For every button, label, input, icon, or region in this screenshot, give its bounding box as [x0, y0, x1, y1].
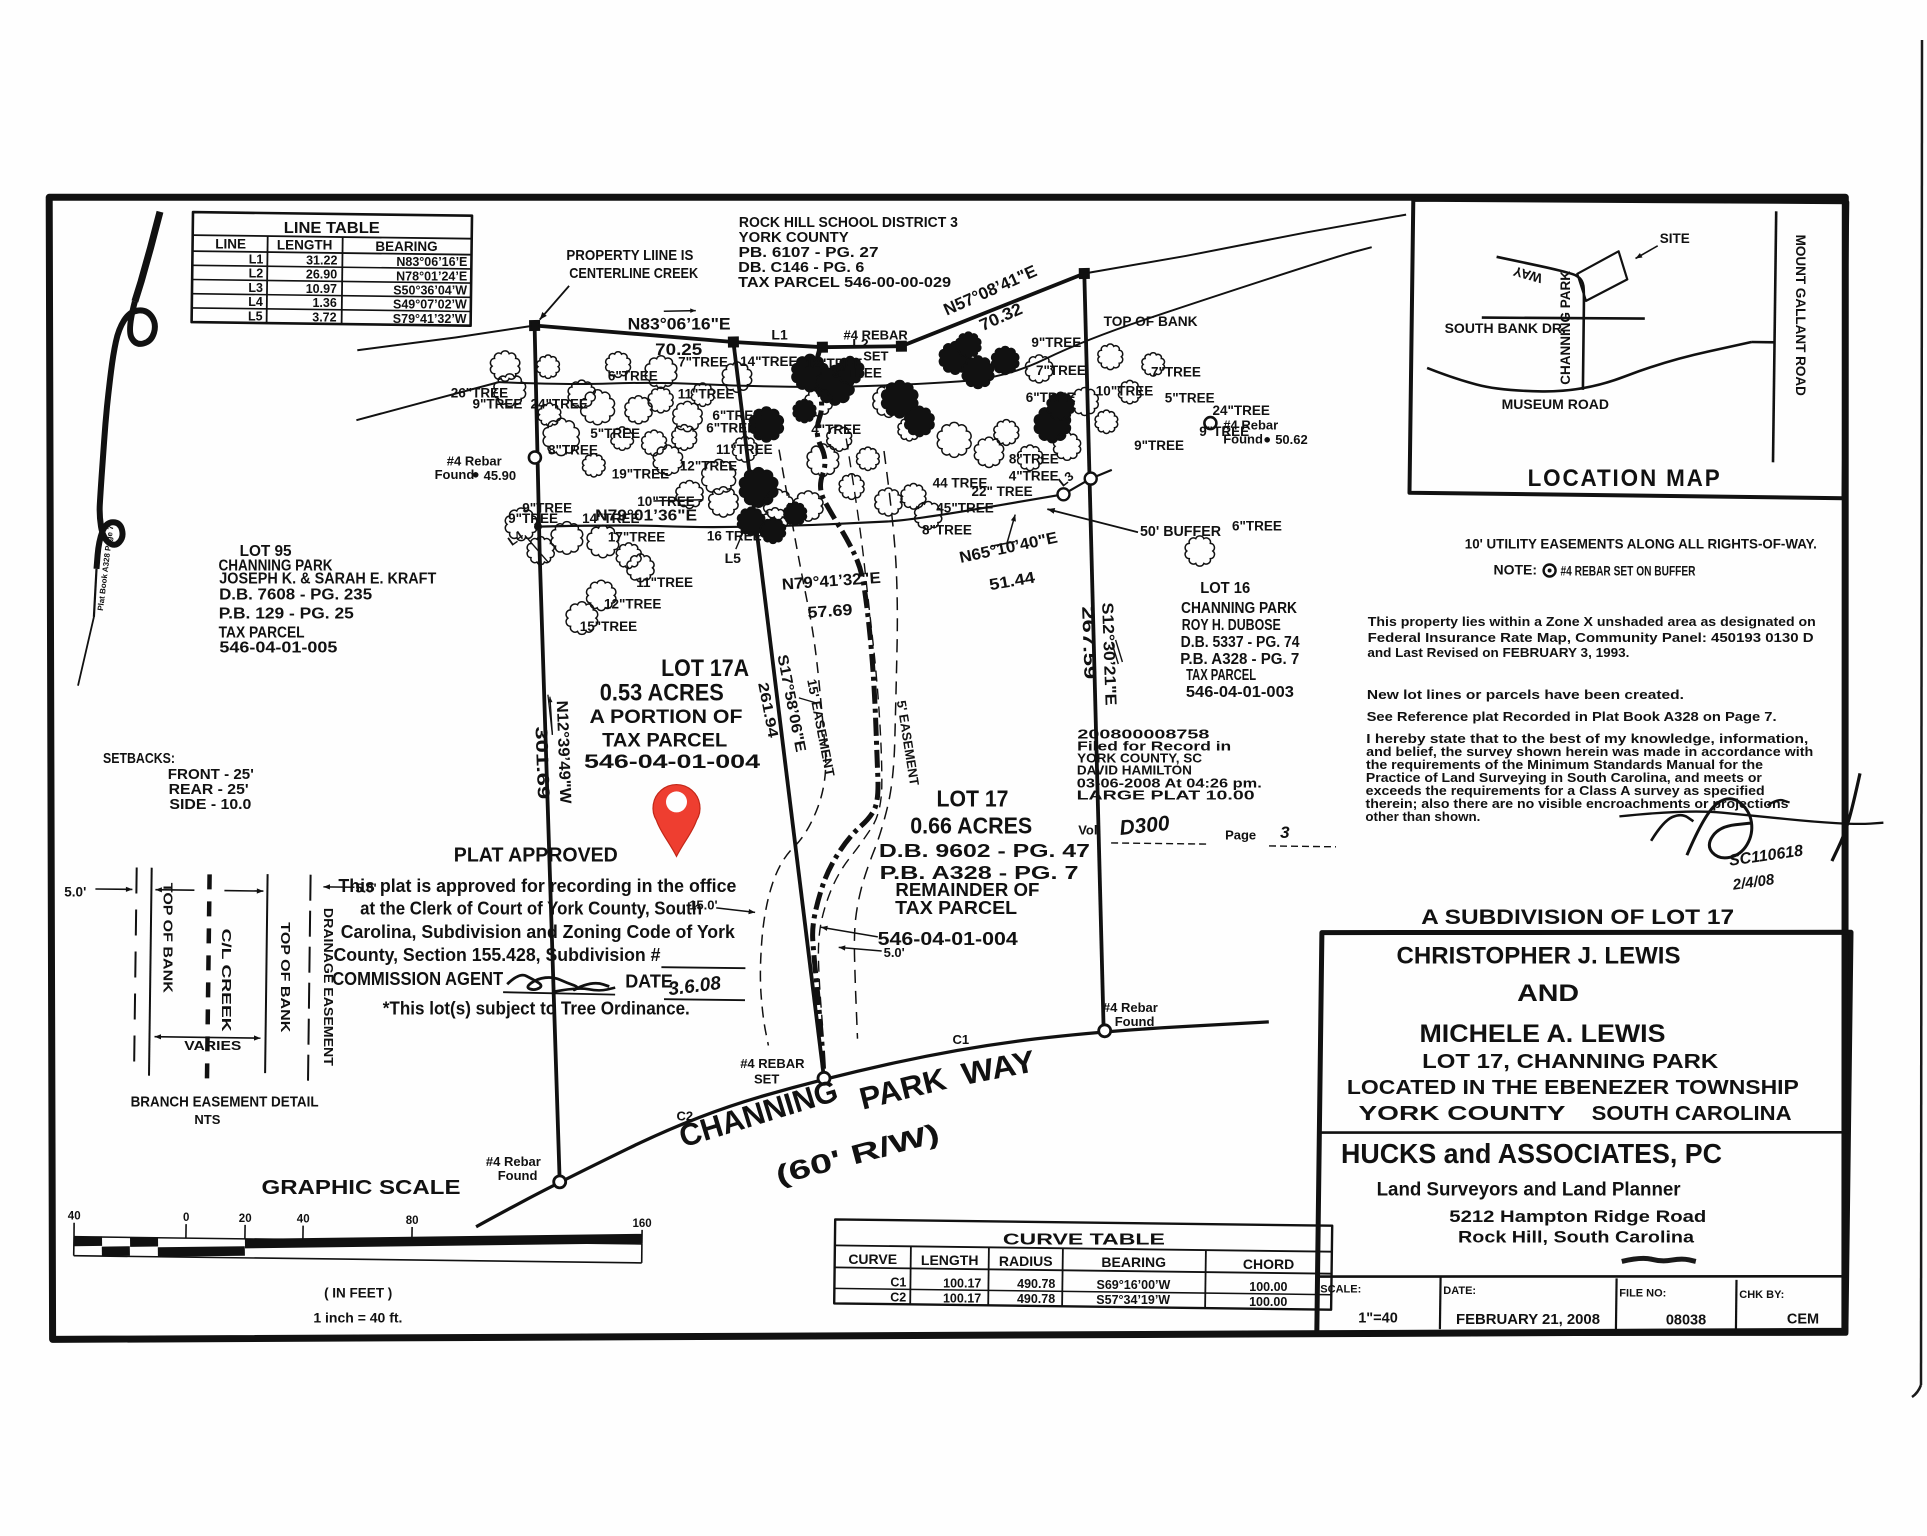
- svg-text:YORK COUNTY: YORK COUNTY: [739, 230, 849, 246]
- svg-text:CURVE TABLE: CURVE TABLE: [1003, 1232, 1165, 1249]
- svg-text:CEM: CEM: [1787, 1312, 1819, 1328]
- svg-text:10' UTILITY EASEMENTS ALONG AL: 10' UTILITY EASEMENTS ALONG ALL RIGHTS-O…: [1465, 535, 1817, 551]
- svg-text:L1: L1: [771, 327, 788, 343]
- svg-text:4"TREE: 4"TREE: [811, 422, 861, 437]
- svg-text:YORK COUNTY: YORK COUNTY: [1359, 1103, 1567, 1125]
- svg-text:12"TREE: 12"TREE: [680, 458, 737, 473]
- svg-text:N83°06’16’E: N83°06’16’E: [396, 255, 467, 269]
- svg-text:S69°16’00’W: S69°16’00’W: [1097, 1278, 1171, 1292]
- svg-text:0.53 ACRES: 0.53 ACRES: [600, 679, 724, 706]
- svg-text:17"TREE: 17"TREE: [608, 530, 665, 545]
- svg-text:MICHELE A. LEWIS: MICHELE A. LEWIS: [1420, 1020, 1666, 1048]
- svg-text:11"TREE: 11"TREE: [716, 442, 773, 457]
- svg-text:CURVE: CURVE: [848, 1251, 897, 1267]
- svg-text:C2: C2: [890, 1290, 906, 1304]
- svg-text:15"TREE: 15"TREE: [580, 619, 637, 634]
- svg-text:Rock Hill, South Carolina: Rock Hill, South Carolina: [1458, 1227, 1695, 1246]
- svg-text:12"TREE: 12"TREE: [604, 596, 661, 611]
- svg-text:MOUNT GALLANT ROAD: MOUNT GALLANT ROAD: [1793, 235, 1808, 396]
- svg-text:*This lot(s) subject to Tree O: *This lot(s) subject to Tree Ordinance.: [383, 999, 690, 1019]
- svg-text:6"TREE: 6"TREE: [1026, 390, 1076, 405]
- svg-text:S57°34’19’W: S57°34’19’W: [1096, 1293, 1170, 1307]
- svg-text:160: 160: [633, 1218, 652, 1230]
- svg-text:County, Section 155.428, Subdi: County, Section 155.428, Subdivision #: [334, 945, 661, 965]
- svg-text:SITE: SITE: [1660, 231, 1690, 246]
- svg-text:P.B. 129 - PG. 25: P.B. 129 - PG. 25: [219, 606, 354, 623]
- svg-text:AND: AND: [1517, 980, 1579, 1007]
- svg-text:16 TREE: 16 TREE: [707, 529, 762, 544]
- svg-text:S79°41’32’W: S79°41’32’W: [393, 312, 467, 326]
- svg-text:CHANNING PARK: CHANNING PARK: [1181, 600, 1298, 617]
- svg-text:6"TREE: 6"TREE: [706, 421, 756, 436]
- svg-text:26.90: 26.90: [306, 268, 337, 282]
- svg-text:9"TREE: 9"TREE: [1199, 424, 1249, 439]
- svg-text:6"TREE: 6"TREE: [608, 368, 658, 383]
- svg-text:C1: C1: [953, 1032, 970, 1047]
- svg-text:( IN FEET ): ( IN FEET ): [324, 1285, 392, 1300]
- svg-text:D.B. 9602 - PG. 47: D.B. 9602 - PG. 47: [879, 841, 1090, 861]
- svg-text:Found: Found: [498, 1168, 538, 1183]
- svg-text:LOT 17, CHANNING PARK: LOT 17, CHANNING PARK: [1422, 1051, 1719, 1073]
- svg-text:50' BUFFER: 50' BUFFER: [1140, 523, 1221, 540]
- svg-text:SET: SET: [754, 1071, 779, 1086]
- svg-text:57.69: 57.69: [807, 602, 853, 622]
- svg-text:9"TREE: 9"TREE: [508, 511, 558, 526]
- svg-text:L3: L3: [248, 281, 263, 295]
- svg-text:Federal Insurance Rate Map, Co: Federal Insurance Rate Map, Community Pa…: [1368, 630, 1814, 645]
- svg-text:PLAT APPROVED: PLAT APPROVED: [454, 845, 618, 867]
- svg-text:31.22: 31.22: [306, 254, 337, 268]
- svg-text:Page: Page: [1225, 827, 1256, 842]
- svg-text:LINE: LINE: [215, 237, 246, 252]
- svg-text:20: 20: [239, 1213, 252, 1225]
- svg-text:267.59: 267.59: [1078, 606, 1100, 680]
- svg-text:TOP OF BANK: TOP OF BANK: [278, 922, 293, 1033]
- svg-text:L5: L5: [248, 309, 263, 323]
- svg-text:4"TREE: 4"TREE: [1009, 469, 1059, 484]
- svg-text:NTS: NTS: [194, 1112, 220, 1127]
- svg-text:19"TREE: 19"TREE: [612, 467, 669, 482]
- svg-text:0.66 ACRES: 0.66 ACRES: [910, 812, 1032, 838]
- svg-text:3: 3: [1280, 823, 1290, 842]
- svg-text:50.62: 50.62: [1275, 432, 1308, 447]
- svg-text:08038: 08038: [1666, 1312, 1706, 1328]
- svg-text:100.17: 100.17: [943, 1276, 981, 1290]
- svg-text:9"TREE: 9"TREE: [473, 397, 523, 412]
- svg-text:546-04-01-004: 546-04-01-004: [878, 929, 1018, 949]
- svg-text:490.78: 490.78: [1017, 1292, 1055, 1306]
- svg-text:SETBACKS:: SETBACKS:: [103, 750, 175, 767]
- svg-text:This plat is approved for reco: This plat is approved for recording in t…: [338, 876, 736, 896]
- svg-text:PB. 6107 - PG. 27: PB. 6107 - PG. 27: [739, 245, 879, 261]
- svg-text:SCALE:: SCALE:: [1320, 1284, 1361, 1296]
- svg-text:at the Clerk of Court of York: at the Clerk of Court of York County, So…: [360, 898, 702, 918]
- svg-text:TAX PARCEL: TAX PARCEL: [602, 730, 727, 751]
- svg-text:0: 0: [183, 1212, 189, 1224]
- svg-text:SOUTH BANK DR.: SOUTH BANK DR.: [1445, 320, 1566, 336]
- svg-text:1.36: 1.36: [312, 296, 336, 310]
- svg-text:8"TREE: 8"TREE: [1009, 452, 1059, 467]
- svg-text:TAX PARCEL 546-00-00-029: TAX PARCEL 546-00-00-029: [738, 275, 951, 291]
- svg-text:3"TREE: 3"TREE: [832, 365, 882, 380]
- svg-text:100.00: 100.00: [1249, 1295, 1287, 1309]
- svg-text:RADIUS: RADIUS: [999, 1253, 1053, 1269]
- svg-text:TOP OF BANK: TOP OF BANK: [161, 883, 176, 994]
- svg-text:SOUTH CAROLINA: SOUTH CAROLINA: [1592, 1103, 1792, 1125]
- svg-text:10"TREE: 10"TREE: [1096, 384, 1153, 399]
- svg-text:#4 Rebar: #4 Rebar: [1103, 1000, 1158, 1015]
- svg-text:9"TREE: 9"TREE: [1134, 438, 1184, 453]
- svg-text:and Last Revised on FEBRUARY 3: and Last Revised on FEBRUARY 3, 1993.: [1367, 645, 1629, 660]
- svg-text:VARIES: VARIES: [184, 1038, 241, 1053]
- svg-text:40: 40: [68, 1211, 81, 1223]
- svg-text:546-04-01-004: 546-04-01-004: [584, 752, 761, 773]
- svg-text:S49°07’02’W: S49°07’02’W: [393, 298, 467, 312]
- svg-text:DATE: DATE: [625, 972, 673, 992]
- svg-text:Found: Found: [1115, 1014, 1155, 1029]
- svg-text:7"TREE: 7"TREE: [1151, 364, 1201, 379]
- svg-text:22" TREE: 22" TREE: [972, 484, 1033, 499]
- svg-text:CHORD: CHORD: [1243, 1256, 1294, 1272]
- svg-text:546-04-01-005: 546-04-01-005: [219, 640, 337, 657]
- svg-text:New lot lines or parcels have: New lot lines or parcels have been creat…: [1367, 687, 1684, 702]
- svg-text:10.97: 10.97: [306, 282, 337, 296]
- svg-text:Carolina, Subdivision and Zoni: Carolina, Subdivision and Zoning Code of…: [341, 922, 736, 942]
- svg-text:JOSEPH K. & SARAH E. KRAFT: JOSEPH K. & SARAH E. KRAFT: [219, 571, 436, 588]
- svg-text:SET: SET: [863, 349, 888, 364]
- svg-text:FILE NO:: FILE NO:: [1619, 1287, 1666, 1299]
- svg-text:1 inch = 40 ft.: 1 inch = 40 ft.: [313, 1309, 402, 1325]
- svg-text:C1: C1: [890, 1275, 906, 1289]
- svg-text:5"TREE: 5"TREE: [1165, 391, 1215, 406]
- svg-text:80: 80: [406, 1215, 419, 1227]
- svg-text:N12°39’49"W: N12°39’49"W: [553, 700, 574, 804]
- svg-text:L5: L5: [725, 550, 742, 566]
- svg-text:HUCKS and ASSOCIATES, PC: HUCKS and ASSOCIATES, PC: [1341, 1138, 1722, 1169]
- svg-text:SIDE - 10.0: SIDE - 10.0: [169, 796, 251, 813]
- svg-text:40: 40: [297, 1214, 310, 1226]
- svg-text:1"=40: 1"=40: [1358, 1310, 1398, 1326]
- svg-text:5.0': 5.0': [355, 880, 376, 895]
- svg-text:L4: L4: [248, 295, 263, 309]
- svg-text:3.72: 3.72: [312, 310, 336, 324]
- svg-text:TAX PARCEL: TAX PARCEL: [1186, 667, 1256, 684]
- svg-text:Found: Found: [435, 467, 475, 482]
- svg-text:FEBRUARY 21, 2008: FEBRUARY 21, 2008: [1456, 1312, 1600, 1328]
- svg-text:LOT 16: LOT 16: [1200, 580, 1250, 597]
- svg-text:45"TREE: 45"TREE: [936, 501, 993, 516]
- svg-text:546-04-01-003: 546-04-01-003: [1186, 684, 1294, 701]
- svg-text:D.B. 7608 - PG. 235: D.B. 7608 - PG. 235: [219, 587, 372, 604]
- svg-text:DRAINAGE EASEMENT: DRAINAGE EASEMENT: [321, 908, 336, 1066]
- svg-text:7"TREE: 7"TREE: [1036, 363, 1086, 378]
- svg-text:TAX PARCEL: TAX PARCEL: [895, 898, 1017, 918]
- svg-text:DB. C146 - PG. 6: DB. C146 - PG. 6: [738, 260, 864, 276]
- svg-text:N78°01’24’E: N78°01’24’E: [396, 269, 467, 283]
- svg-text:LOCATED IN THE EBENEZER TOWNSH: LOCATED IN THE EBENEZER TOWNSHIP: [1347, 1077, 1799, 1099]
- svg-text:6"TREE: 6"TREE: [1232, 518, 1282, 533]
- svg-text:LENGTH: LENGTH: [277, 238, 333, 253]
- svg-text:ROCK HILL SCHOOL DISTRICT 3: ROCK HILL SCHOOL DISTRICT 3: [739, 215, 958, 231]
- svg-text:490.78: 490.78: [1017, 1277, 1055, 1291]
- svg-text:CHRISTOPHER J. LEWIS: CHRISTOPHER J. LEWIS: [1397, 943, 1681, 970]
- svg-text:5"TREE: 5"TREE: [590, 426, 640, 441]
- svg-text:LENGTH: LENGTH: [921, 1252, 979, 1268]
- svg-text:24"TREE: 24"TREE: [531, 397, 588, 412]
- svg-text:#4 REBAR: #4 REBAR: [740, 1056, 805, 1071]
- svg-text:REMAINDER OF: REMAINDER OF: [895, 880, 1039, 900]
- svg-text:See Reference plat Recorded in: See Reference plat Recorded in Plat Book…: [1367, 709, 1777, 724]
- svg-text:BEARING: BEARING: [375, 239, 437, 254]
- svg-text:A SUBDIVISION OF LOT 17: A SUBDIVISION OF LOT 17: [1421, 906, 1734, 929]
- svg-text:CHK BY:: CHK BY:: [1739, 1289, 1784, 1301]
- svg-text:11"TREE: 11"TREE: [636, 575, 693, 590]
- svg-text:P.B. A328 - PG. 7: P.B. A328 - PG. 7: [1180, 651, 1299, 668]
- svg-text:LOT 17A: LOT 17A: [661, 655, 749, 682]
- svg-text:other than shown.: other than shown.: [1365, 809, 1480, 824]
- svg-text:A PORTION OF: A PORTION OF: [590, 707, 743, 728]
- svg-text:14"TREE: 14"TREE: [582, 511, 639, 526]
- svg-text:#4 Rebar: #4 Rebar: [447, 453, 502, 468]
- svg-text:GRAPHIC SCALE: GRAPHIC SCALE: [262, 1177, 461, 1199]
- svg-text:TOP OF BANK: TOP OF BANK: [1104, 314, 1198, 329]
- svg-text:BRANCH EASEMENT DETAIL: BRANCH EASEMENT DETAIL: [131, 1093, 319, 1110]
- svg-text:S50°36’04’W: S50°36’04’W: [393, 284, 467, 298]
- svg-text:DATE:: DATE:: [1443, 1285, 1476, 1297]
- svg-text:301.69: 301.69: [532, 726, 554, 800]
- svg-text:8"TREE: 8"TREE: [922, 523, 972, 538]
- svg-text:5212 Hampton Ridge Road: 5212 Hampton Ridge Road: [1449, 1207, 1706, 1226]
- svg-text:COMMISSION AGENT: COMMISSION AGENT: [332, 969, 503, 989]
- svg-text:45.90: 45.90: [484, 468, 517, 483]
- svg-text:This property lies within a Zo: This property lies within a Zone X unsha…: [1368, 614, 1816, 629]
- svg-text:100.17: 100.17: [943, 1291, 981, 1305]
- svg-text:C/L CREEK: C/L CREEK: [219, 929, 234, 1033]
- svg-text:#4 REBAR SET ON BUFFER: #4 REBAR SET ON BUFFER: [1561, 563, 1696, 579]
- svg-text:#4 REBAR: #4 REBAR: [844, 327, 909, 342]
- svg-text:BEARING: BEARING: [1101, 1254, 1166, 1270]
- svg-text:D.B. 5337 - PG. 74: D.B. 5337 - PG. 74: [1181, 634, 1300, 651]
- svg-text:7"TREE: 7"TREE: [678, 354, 728, 369]
- svg-text:LARGE PLAT 10.00: LARGE PLAT 10.00: [1077, 787, 1255, 802]
- svg-text:CENTERLINE CREEK: CENTERLINE CREEK: [569, 265, 698, 282]
- svg-text:#4 Rebar: #4 Rebar: [486, 1154, 541, 1169]
- svg-text:LOT 17: LOT 17: [937, 786, 1009, 812]
- svg-text:LINE TABLE: LINE TABLE: [284, 220, 380, 237]
- svg-text:L2: L2: [249, 267, 264, 281]
- svg-text:ROY H. DUBOSE: ROY H. DUBOSE: [1182, 617, 1281, 634]
- svg-text:N83°06’16"E: N83°06’16"E: [628, 315, 731, 334]
- svg-text:9"TREE: 9"TREE: [1031, 335, 1081, 350]
- svg-text:L1: L1: [249, 253, 264, 267]
- svg-text:24"TREE: 24"TREE: [1213, 403, 1270, 418]
- svg-text:100.00: 100.00: [1249, 1280, 1287, 1294]
- svg-text:Land Surveyors and Land Planne: Land Surveyors and Land Planner: [1377, 1179, 1682, 1200]
- svg-text:NOTE:: NOTE:: [1494, 562, 1538, 578]
- svg-text:11"TREE: 11"TREE: [678, 386, 735, 401]
- svg-text:Vol: Vol: [1078, 823, 1097, 838]
- svg-text:8"TREE: 8"TREE: [548, 443, 598, 458]
- svg-text:PROPERTY LIINE IS: PROPERTY LIINE IS: [566, 247, 693, 264]
- svg-text:MUSEUM ROAD: MUSEUM ROAD: [1502, 396, 1609, 412]
- svg-text:14"TREE: 14"TREE: [740, 354, 797, 369]
- svg-text:LOCATION MAP: LOCATION MAP: [1528, 465, 1722, 492]
- svg-text:5.0': 5.0': [64, 885, 86, 900]
